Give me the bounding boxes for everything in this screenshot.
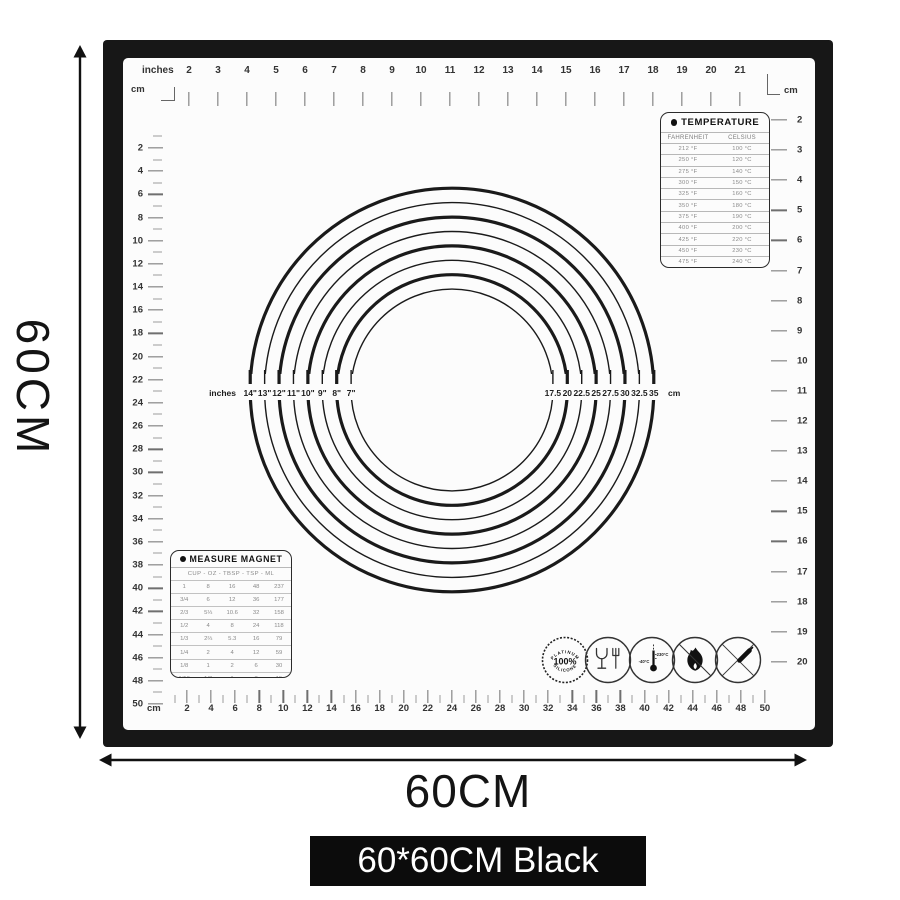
ring-inch-label: 10" <box>301 388 315 398</box>
mat-print-graphics: 14"3513"32.512"3011"27.510"259"22.58"207… <box>123 58 815 730</box>
temperature-range-icon: -40°C 230°C <box>630 638 675 683</box>
ring-inch-label: 13" <box>258 388 272 398</box>
pastry-mat: 23456789101112131415161718192021 2468101… <box>103 40 833 747</box>
ring-inch-label: 8" <box>332 388 341 398</box>
ring-inch-label: 7" <box>347 388 356 398</box>
product-image: 60CM 23456789101112131415161718192021 24… <box>0 0 900 900</box>
variant-badge: 60*60CM Black <box>310 836 646 886</box>
ring-cm-label: 27.5 <box>602 388 619 398</box>
glass-fork-food-safe-icon <box>586 638 631 683</box>
ring-cm-label: 17.5 <box>545 388 562 398</box>
mat-surface: 23456789101112131415161718192021 2468101… <box>123 58 815 730</box>
svg-text:-40°C: -40°C <box>639 659 650 664</box>
ring-cm-label: 32.5 <box>631 388 648 398</box>
ring-right-unit-label: cm <box>668 388 681 398</box>
width-dimension-label: 60CM <box>103 764 833 818</box>
ring-inch-label: 9" <box>318 388 327 398</box>
ring-inch-label: 11" <box>287 388 300 398</box>
platinum-silicone-badge-icon: PLATINUM 100% SILICONE <box>543 638 588 683</box>
ring-cm-label: 35 <box>649 388 659 398</box>
ring-cm-label: 20 <box>563 388 573 398</box>
no-knife-icon <box>716 638 761 683</box>
svg-text:230°C: 230°C <box>657 652 669 657</box>
height-dimension-arrow <box>68 44 94 740</box>
ring-cm-label: 22.5 <box>573 388 590 398</box>
height-dimension-label: 60CM <box>6 319 60 458</box>
ring-left-unit-label: inches <box>209 388 236 398</box>
concentric-circles: 14"3513"32.512"3011"27.510"259"22.58"207… <box>209 188 746 592</box>
ring-inch-label: 12" <box>272 388 286 398</box>
ring-cm-label: 30 <box>620 388 630 398</box>
ring-cm-label: 25 <box>591 388 601 398</box>
no-open-flame-icon <box>673 638 718 683</box>
ring-inch-label: 14" <box>243 388 256 398</box>
